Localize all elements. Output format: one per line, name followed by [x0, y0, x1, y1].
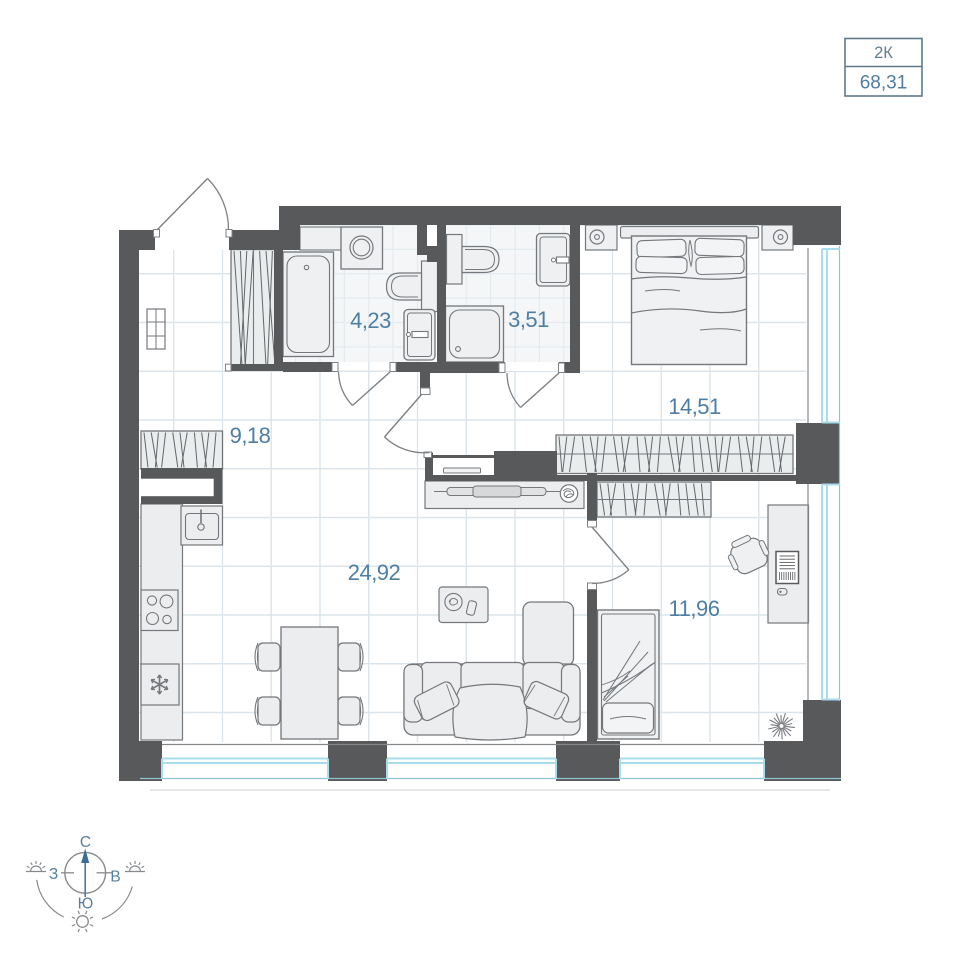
- svg-text:9,18: 9,18: [230, 423, 271, 448]
- svg-text:14,51: 14,51: [668, 394, 721, 419]
- svg-text:2К: 2К: [874, 44, 893, 62]
- svg-text:11,96: 11,96: [669, 596, 720, 621]
- svg-text:4,23: 4,23: [350, 308, 391, 333]
- svg-text:3,51: 3,51: [508, 307, 549, 332]
- svg-text:Ю: Ю: [78, 896, 94, 913]
- svg-text:68,31: 68,31: [860, 73, 908, 94]
- svg-text:24,92: 24,92: [348, 560, 401, 585]
- svg-text:В: В: [110, 869, 120, 886]
- svg-text:З: З: [49, 866, 58, 883]
- svg-text:С: С: [80, 834, 91, 851]
